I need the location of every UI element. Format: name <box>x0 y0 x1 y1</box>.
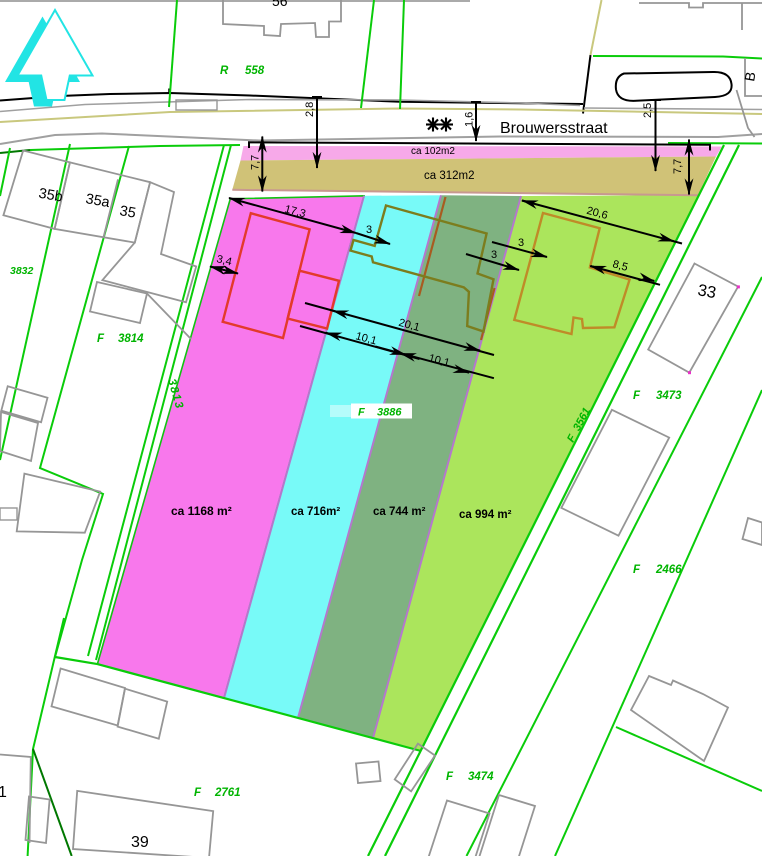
svg-text:ca 716m²: ca 716m² <box>291 506 340 518</box>
svg-text:ca 994 m²: ca 994 m² <box>459 509 512 521</box>
svg-text:2761: 2761 <box>214 787 241 799</box>
svg-text:3473: 3473 <box>656 390 682 402</box>
svg-text:1: 1 <box>0 784 7 801</box>
svg-text:ca 1168 m²: ca 1168 m² <box>171 504 232 518</box>
svg-text:R: R <box>220 65 229 77</box>
svg-text:ca 744 m²: ca 744 m² <box>373 506 426 518</box>
svg-text:7,7: 7,7 <box>672 159 684 174</box>
svg-text:39: 39 <box>131 834 149 851</box>
svg-text:558: 558 <box>245 65 265 77</box>
svg-text:F: F <box>194 787 202 799</box>
svg-text:33: 33 <box>696 281 717 302</box>
svg-text:56: 56 <box>272 0 288 9</box>
svg-text:35: 35 <box>118 203 137 222</box>
svg-text:2466: 2466 <box>655 564 682 576</box>
svg-text:2,8: 2,8 <box>304 102 316 117</box>
svg-text:2,5: 2,5 <box>642 103 654 118</box>
svg-text:F: F <box>446 771 454 783</box>
svg-text:ca 312m2: ca 312m2 <box>424 170 475 182</box>
svg-text:3474: 3474 <box>468 771 494 783</box>
svg-text:3: 3 <box>518 237 524 249</box>
svg-text:F: F <box>97 333 105 345</box>
svg-text:1,6: 1,6 <box>464 112 476 127</box>
svg-text:ca 102m2: ca 102m2 <box>411 146 455 157</box>
svg-text:3832: 3832 <box>10 265 34 277</box>
svg-text:F: F <box>358 407 365 419</box>
svg-text:F: F <box>633 390 641 402</box>
svg-text:7,7: 7,7 <box>250 155 262 170</box>
svg-text:3886: 3886 <box>377 407 402 419</box>
svg-text:3: 3 <box>366 224 372 236</box>
svg-text:3814: 3814 <box>118 333 144 345</box>
svg-text:3: 3 <box>491 249 497 261</box>
svg-text:Brouwersstraat: Brouwersstraat <box>500 120 608 137</box>
svg-text:F: F <box>633 564 641 576</box>
